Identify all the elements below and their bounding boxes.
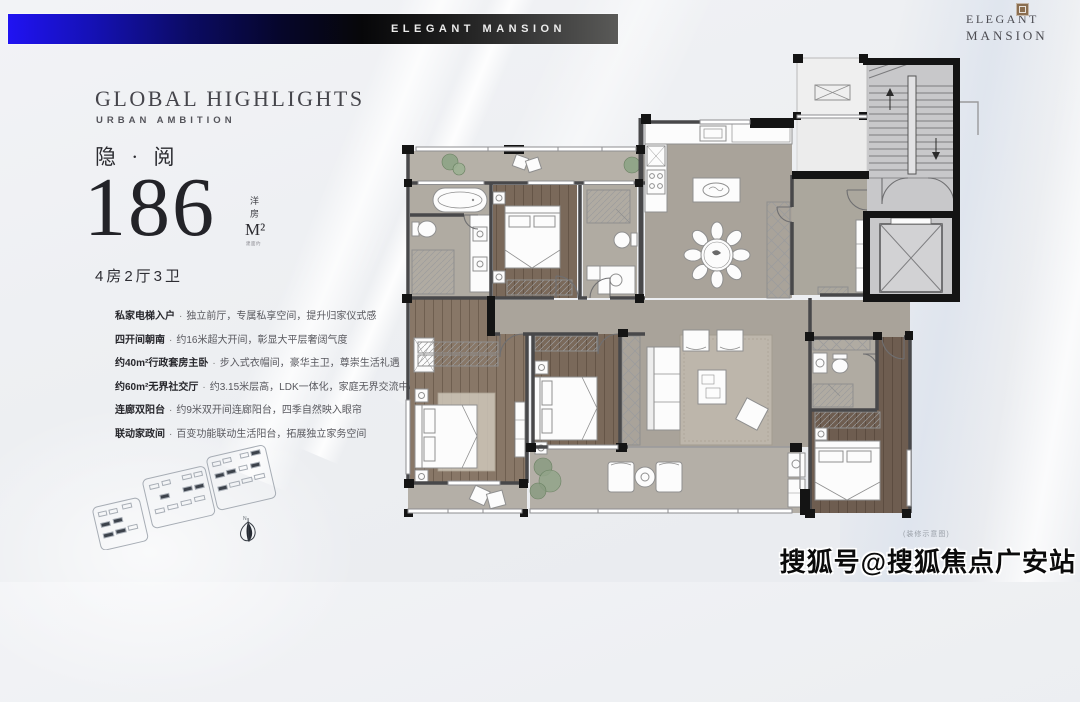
feature-desc: 步入式衣帽间，豪华主卫，尊崇生活礼遇	[220, 358, 400, 369]
feature-label: 约60m²无界社交厅	[115, 382, 198, 393]
feature-list: 私家电梯入户·独立前厅，专属私享空间，提升归家仪式感 四开间朝南·约16米超大开…	[115, 311, 400, 440]
page-subtitle: URBAN AMBITION	[96, 115, 236, 126]
feature-label: 私家电梯入户	[115, 311, 175, 322]
top-banner: ELEGANT MANSION	[8, 14, 618, 44]
feature-desc: 约16米超大开间，彰显大平层奢阔气度	[176, 335, 347, 346]
feature-item: 四开间朝南·约16米超大开间，彰显大平层奢阔气度	[115, 335, 400, 346]
site-plan-diagrams: N	[68, 438, 278, 550]
area-type-label: 洋房	[248, 196, 261, 222]
feature-label: 约40m²行政套房主卧	[115, 358, 208, 369]
area-value: 186	[84, 166, 216, 250]
site-plan-2	[142, 466, 216, 529]
feature-separator: ·	[202, 382, 205, 393]
area-note: 建面约	[246, 241, 261, 247]
room-count: 4房2厅3卫	[95, 265, 183, 286]
feature-separator: ·	[212, 358, 215, 369]
brand-logo: ELEGANT MANSION	[966, 12, 1048, 44]
feature-desc: 约9米双开间连廊阳台，四季自然映入眼帘	[176, 405, 362, 416]
site-plan-3	[206, 445, 277, 511]
floorplan-caption: (装修示意图)	[903, 529, 950, 539]
area-unit: M²	[245, 220, 265, 240]
feature-item: 约60m²无界社交厅·约3.15米层高，LDK一体化，家庭无界交流中心	[115, 382, 400, 393]
feature-item: 连廊双阳台·约9米双开间连廊阳台，四季自然映入眼帘	[115, 405, 400, 416]
feature-separator: ·	[169, 405, 172, 416]
feature-label: 连廊双阳台	[115, 405, 165, 416]
floorplan-svg	[388, 52, 988, 547]
page-title: GLOBAL HIGHLIGHTS	[95, 86, 365, 112]
logo-line1: ELEGANT	[966, 12, 1048, 27]
feature-item: 约40m²行政套房主卧·步入式衣帽间，豪华主卫，尊崇生活礼遇	[115, 358, 400, 369]
feature-item: 私家电梯入户·独立前厅，专属私享空间，提升归家仪式感	[115, 311, 400, 322]
compass-icon: N	[241, 516, 256, 542]
feature-desc: 独立前厅，专属私享空间，提升归家仪式感	[186, 311, 376, 322]
logo-seal-icon	[1016, 3, 1029, 16]
banner-title: ELEGANT MANSION	[391, 23, 566, 35]
page: { "banner": { "title": "ELEGANT MANSION"…	[0, 0, 1080, 582]
feature-separator: ·	[179, 311, 182, 322]
watermark-text: 搜狐号@搜狐焦点广安站	[780, 542, 1076, 579]
feature-separator: ·	[169, 335, 172, 346]
compass-north-label: N	[243, 516, 247, 522]
site-plan-1	[92, 497, 149, 550]
feature-label: 四开间朝南	[115, 335, 165, 346]
logo-line2: MANSION	[966, 28, 1048, 44]
